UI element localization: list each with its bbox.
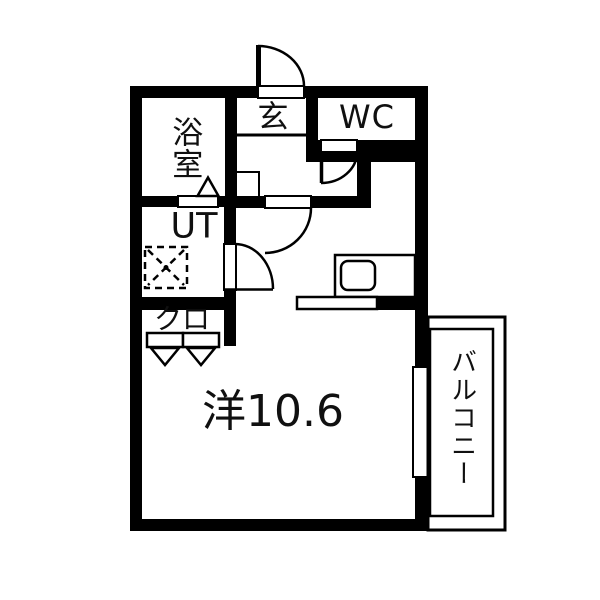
wall-bottom bbox=[130, 519, 428, 531]
kitchen-counter-front bbox=[297, 297, 377, 309]
closet-door-arrow-right bbox=[187, 348, 215, 365]
entrance-corner-box bbox=[236, 172, 259, 196]
living-room-door-arc bbox=[265, 208, 311, 253]
utility-label: UT bbox=[171, 209, 218, 246]
wall-right-lower bbox=[415, 477, 428, 531]
washing-machine-center-dot bbox=[164, 265, 169, 270]
wall-bathroom-right bbox=[225, 86, 237, 207]
utility-door-opening bbox=[224, 244, 236, 290]
toilet-door-opening bbox=[321, 140, 357, 152]
floorplan-drawing bbox=[0, 0, 600, 600]
bathroom-label: 浴室 bbox=[168, 116, 201, 180]
closet-door-arrow-left bbox=[151, 348, 179, 365]
living-room-door-opening bbox=[265, 196, 311, 208]
bathroom-door-opening bbox=[178, 196, 218, 207]
toilet-label: WC bbox=[339, 101, 395, 135]
entrance-door-leaf bbox=[256, 45, 261, 87]
wall-right-upper bbox=[415, 86, 428, 367]
entrance-door-opening bbox=[258, 86, 304, 98]
living-room-label: 洋10.6 bbox=[202, 389, 344, 435]
floorplan: 浴室 玄 WC UT クロ 洋10.6 バルコニー bbox=[0, 0, 600, 600]
kitchen-sink bbox=[341, 261, 375, 290]
closet-label: クロ bbox=[154, 304, 210, 333]
entrance-label: 玄 bbox=[258, 102, 289, 135]
entrance-door-arc bbox=[258, 46, 304, 86]
bathroom-door-triangle bbox=[198, 178, 219, 197]
utility-door-arc bbox=[235, 244, 273, 289]
balcony-label: バルコニー bbox=[447, 348, 474, 488]
